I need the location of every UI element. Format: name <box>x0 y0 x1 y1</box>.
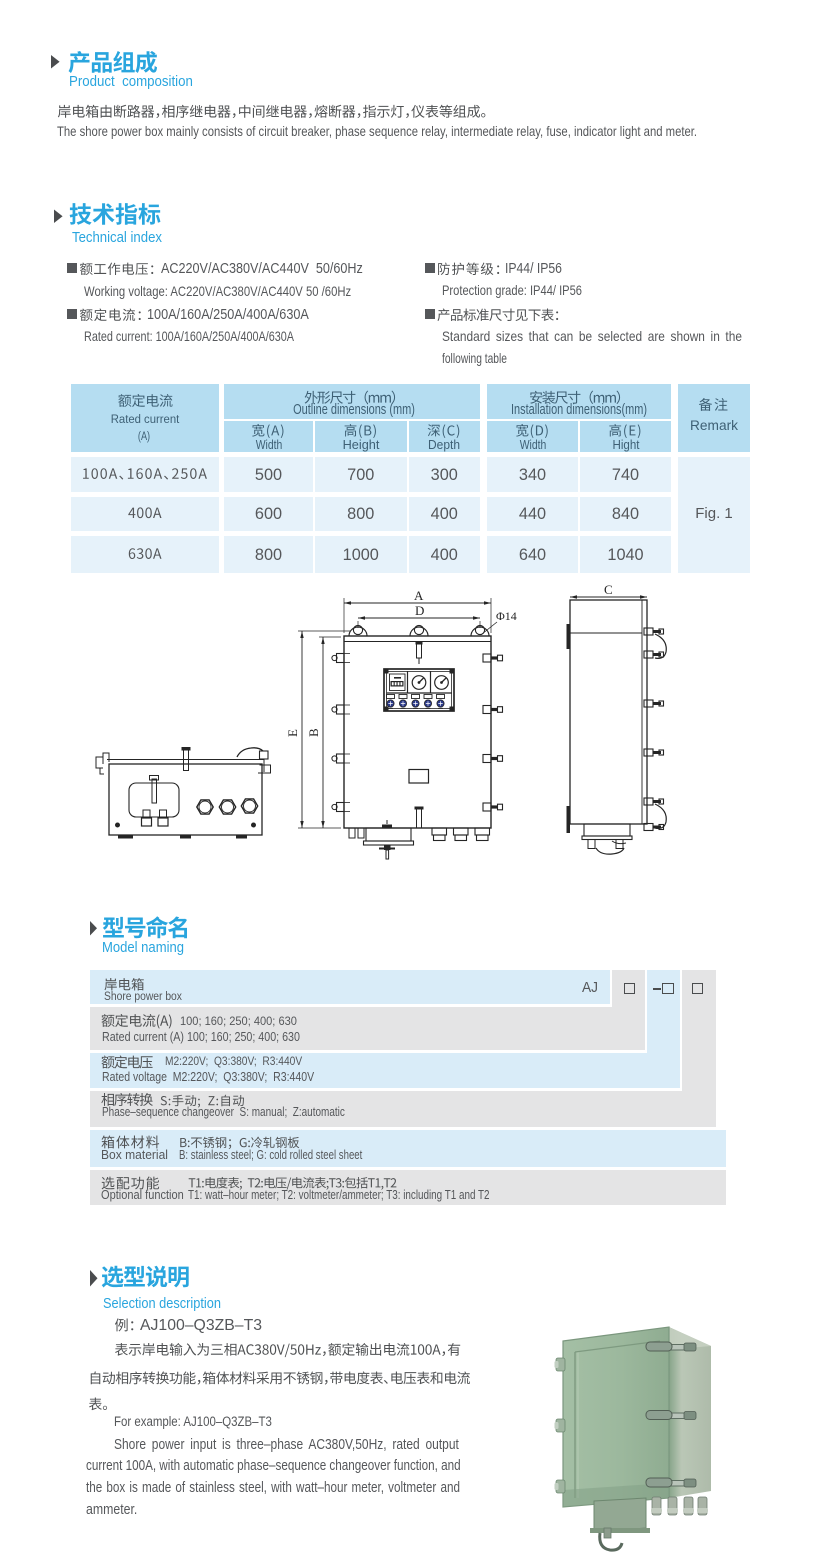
svg-text:A: A <box>414 588 424 603</box>
svg-text:E: E <box>285 729 300 737</box>
svg-text:Φ14: Φ14 <box>496 609 517 623</box>
svg-text:D: D <box>415 603 424 618</box>
svg-text:C: C <box>604 582 613 597</box>
svg-text:B: B <box>306 728 321 737</box>
